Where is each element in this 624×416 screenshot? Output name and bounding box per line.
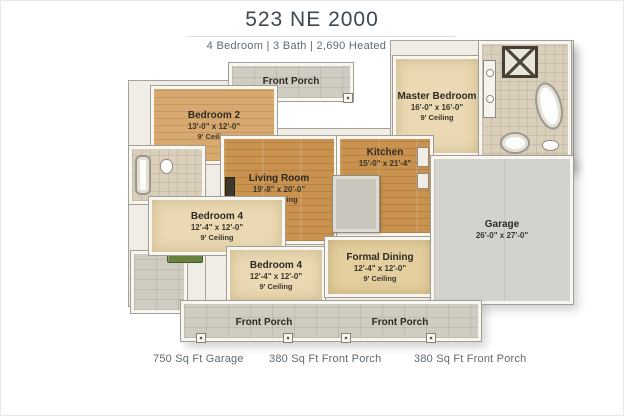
shower-icon bbox=[502, 46, 538, 78]
sink-icon bbox=[486, 69, 494, 77]
kitchen-island-icon bbox=[332, 175, 380, 233]
stat-garage-sqft: 750 Sq Ft Garage bbox=[153, 353, 244, 365]
sink-icon bbox=[486, 95, 494, 103]
room-garage: Garage 26'-0" x 27'-0" bbox=[431, 156, 573, 304]
room-label: Master Bedroom bbox=[398, 91, 477, 103]
porch-pillar bbox=[196, 333, 206, 343]
toilet-icon bbox=[160, 159, 173, 174]
page-title: 523 NE 2000 bbox=[1, 8, 623, 32]
room-dims: 12'-4" x 12'-0" bbox=[191, 223, 243, 233]
stat-front-porch-sqft-1: 380 Sq Ft Front Porch bbox=[269, 353, 381, 365]
porch-pillar bbox=[426, 333, 436, 343]
room-ceiling: 9' Ceiling bbox=[420, 113, 453, 122]
room-dims: 12'-4" x 12'-0" bbox=[250, 272, 302, 282]
room-dims: 16'-0" x 16'-0" bbox=[411, 103, 463, 113]
room-label: Bedroom 4 bbox=[191, 211, 243, 223]
porch-pillar bbox=[343, 93, 353, 103]
room-dims: 19'-8" x 20'-0" bbox=[224, 185, 334, 195]
room-kitchen: Kitchen 15'-0" x 21'-4" bbox=[337, 136, 433, 236]
room-bedroom-4-front: Bedroom 4 12'-4" x 12'-0" 9' Ceiling bbox=[227, 247, 325, 303]
soaking-tub-icon bbox=[500, 132, 530, 154]
toilet-icon bbox=[542, 140, 559, 151]
room-label: Front Porch bbox=[214, 317, 314, 329]
room-label: Bedroom 2 bbox=[188, 110, 240, 122]
room-master-bath bbox=[479, 41, 571, 166]
title-divider bbox=[187, 36, 455, 37]
room-label: Formal Dining bbox=[346, 252, 413, 264]
room-hall-bath bbox=[129, 146, 205, 204]
room-label: Bedroom 4 bbox=[250, 260, 302, 272]
porch-pillar bbox=[341, 333, 351, 343]
room-label: Garage bbox=[485, 219, 519, 231]
room-formal-dining: Formal Dining 12'-4" x 12'-0" 9' Ceiling bbox=[325, 237, 435, 297]
porch-pillar bbox=[283, 333, 293, 343]
room-dims: 26'-0" x 27'-0" bbox=[476, 231, 528, 241]
vanity-icon bbox=[483, 60, 496, 118]
room-front-porch-bottom: Front Porch Front Porch bbox=[181, 301, 481, 341]
refrigerator-icon bbox=[417, 147, 429, 167]
stat-front-porch-sqft-2: 380 Sq Ft Front Porch bbox=[414, 353, 526, 365]
bathtub-icon bbox=[135, 155, 151, 195]
room-ceiling: 9' Ceiling bbox=[200, 233, 233, 242]
room-dims: 12'-4" x 12'-0" bbox=[354, 264, 406, 274]
room-label: Living Room bbox=[224, 173, 334, 185]
floor-plan-page: 523 NE 2000 4 Bedroom | 3 Bath | 2,690 H… bbox=[0, 0, 624, 416]
room-ceiling: 9' Ceiling bbox=[259, 282, 292, 291]
room-ceiling: 9' Ceiling bbox=[363, 274, 396, 283]
bathtub-icon bbox=[531, 80, 568, 133]
room-label: Front Porch bbox=[350, 317, 450, 329]
room-dims: 13'-0" x 12'-0" bbox=[188, 122, 240, 132]
stove-icon bbox=[417, 173, 429, 189]
